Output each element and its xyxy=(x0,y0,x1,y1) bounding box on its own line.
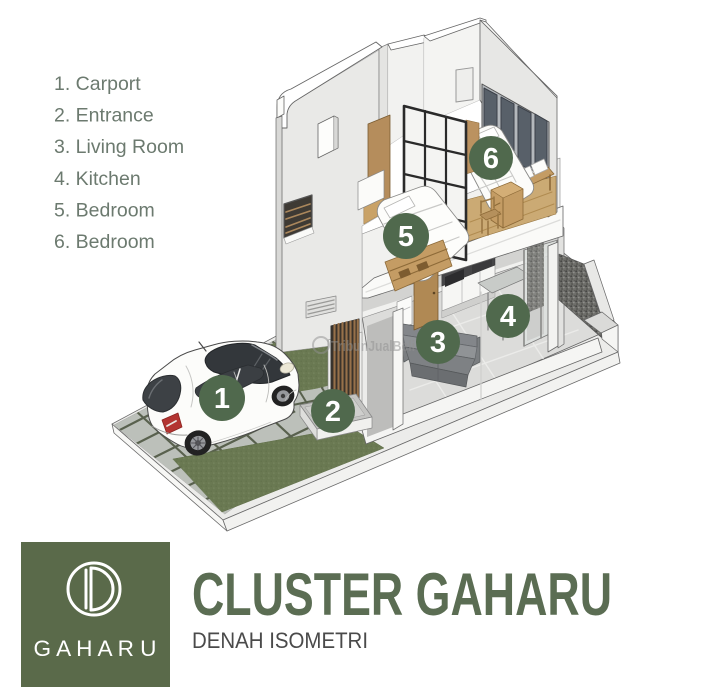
svg-text:TribunJualBeli: TribunJualBeli xyxy=(331,338,415,355)
svg-text:3. Living Room: 3. Living Room xyxy=(54,136,184,158)
svg-text:2: 2 xyxy=(325,396,341,428)
svg-text:1. Carport: 1. Carport xyxy=(54,73,141,95)
svg-text:6: 6 xyxy=(483,143,499,175)
svg-text:G A H A R U: G A H A R U xyxy=(34,636,157,661)
svg-text:3: 3 xyxy=(430,327,446,359)
svg-text:DENAH ISOMETRI: DENAH ISOMETRI xyxy=(192,628,368,653)
svg-text:4. Kitchen: 4. Kitchen xyxy=(54,168,141,190)
svg-text:1: 1 xyxy=(214,383,230,415)
svg-text:5. Bedroom: 5. Bedroom xyxy=(54,200,155,222)
svg-text:6. Bedroom: 6. Bedroom xyxy=(54,231,155,253)
svg-text:4: 4 xyxy=(500,301,516,333)
svg-text:CLUSTER GAHARU: CLUSTER GAHARU xyxy=(192,561,612,628)
svg-text:2. Entrance: 2. Entrance xyxy=(54,105,154,127)
svg-text:5: 5 xyxy=(398,221,414,253)
